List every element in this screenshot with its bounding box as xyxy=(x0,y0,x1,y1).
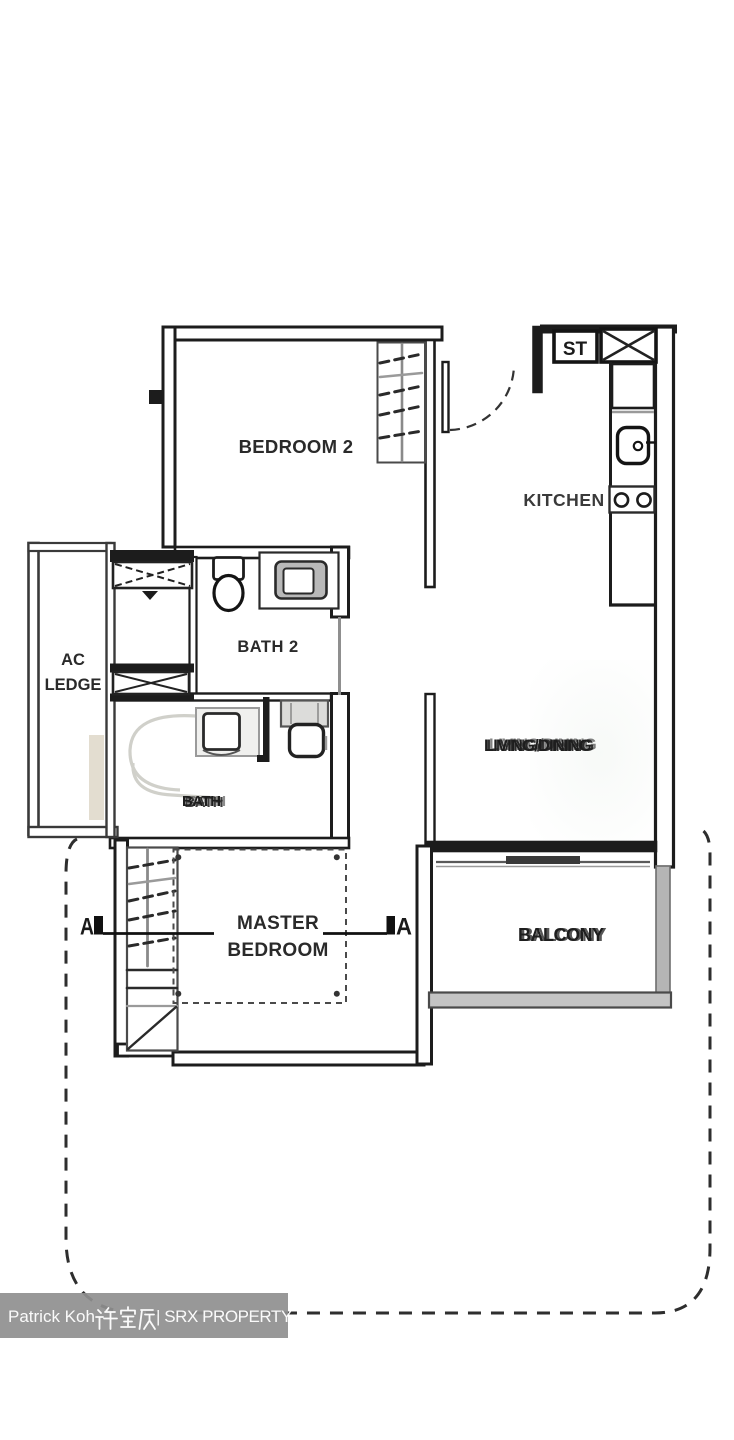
svg-text:ST: ST xyxy=(563,339,588,360)
svg-text:Patrick Koh: Patrick Koh xyxy=(8,1307,95,1326)
svg-text:AC: AC xyxy=(61,651,85,669)
svg-text:A: A xyxy=(80,914,94,941)
svg-text:MASTER: MASTER xyxy=(237,913,319,934)
svg-text:LIVING/DINING: LIVING/DINING xyxy=(489,736,596,754)
svg-text:LEDGE: LEDGE xyxy=(45,676,102,694)
svg-text:A: A xyxy=(396,914,412,941)
svg-text:BEDROOM: BEDROOM xyxy=(227,940,328,961)
svg-text:BEDROOM 2: BEDROOM 2 xyxy=(239,436,354,457)
svg-text:BATH: BATH xyxy=(187,793,226,810)
svg-text:KITCHEN: KITCHEN xyxy=(523,490,604,510)
svg-text:BALCONY: BALCONY xyxy=(521,925,607,945)
svg-text:| SRX PROPERTY: | SRX PROPERTY xyxy=(156,1307,292,1326)
svg-text:BATH 2: BATH 2 xyxy=(237,638,298,656)
